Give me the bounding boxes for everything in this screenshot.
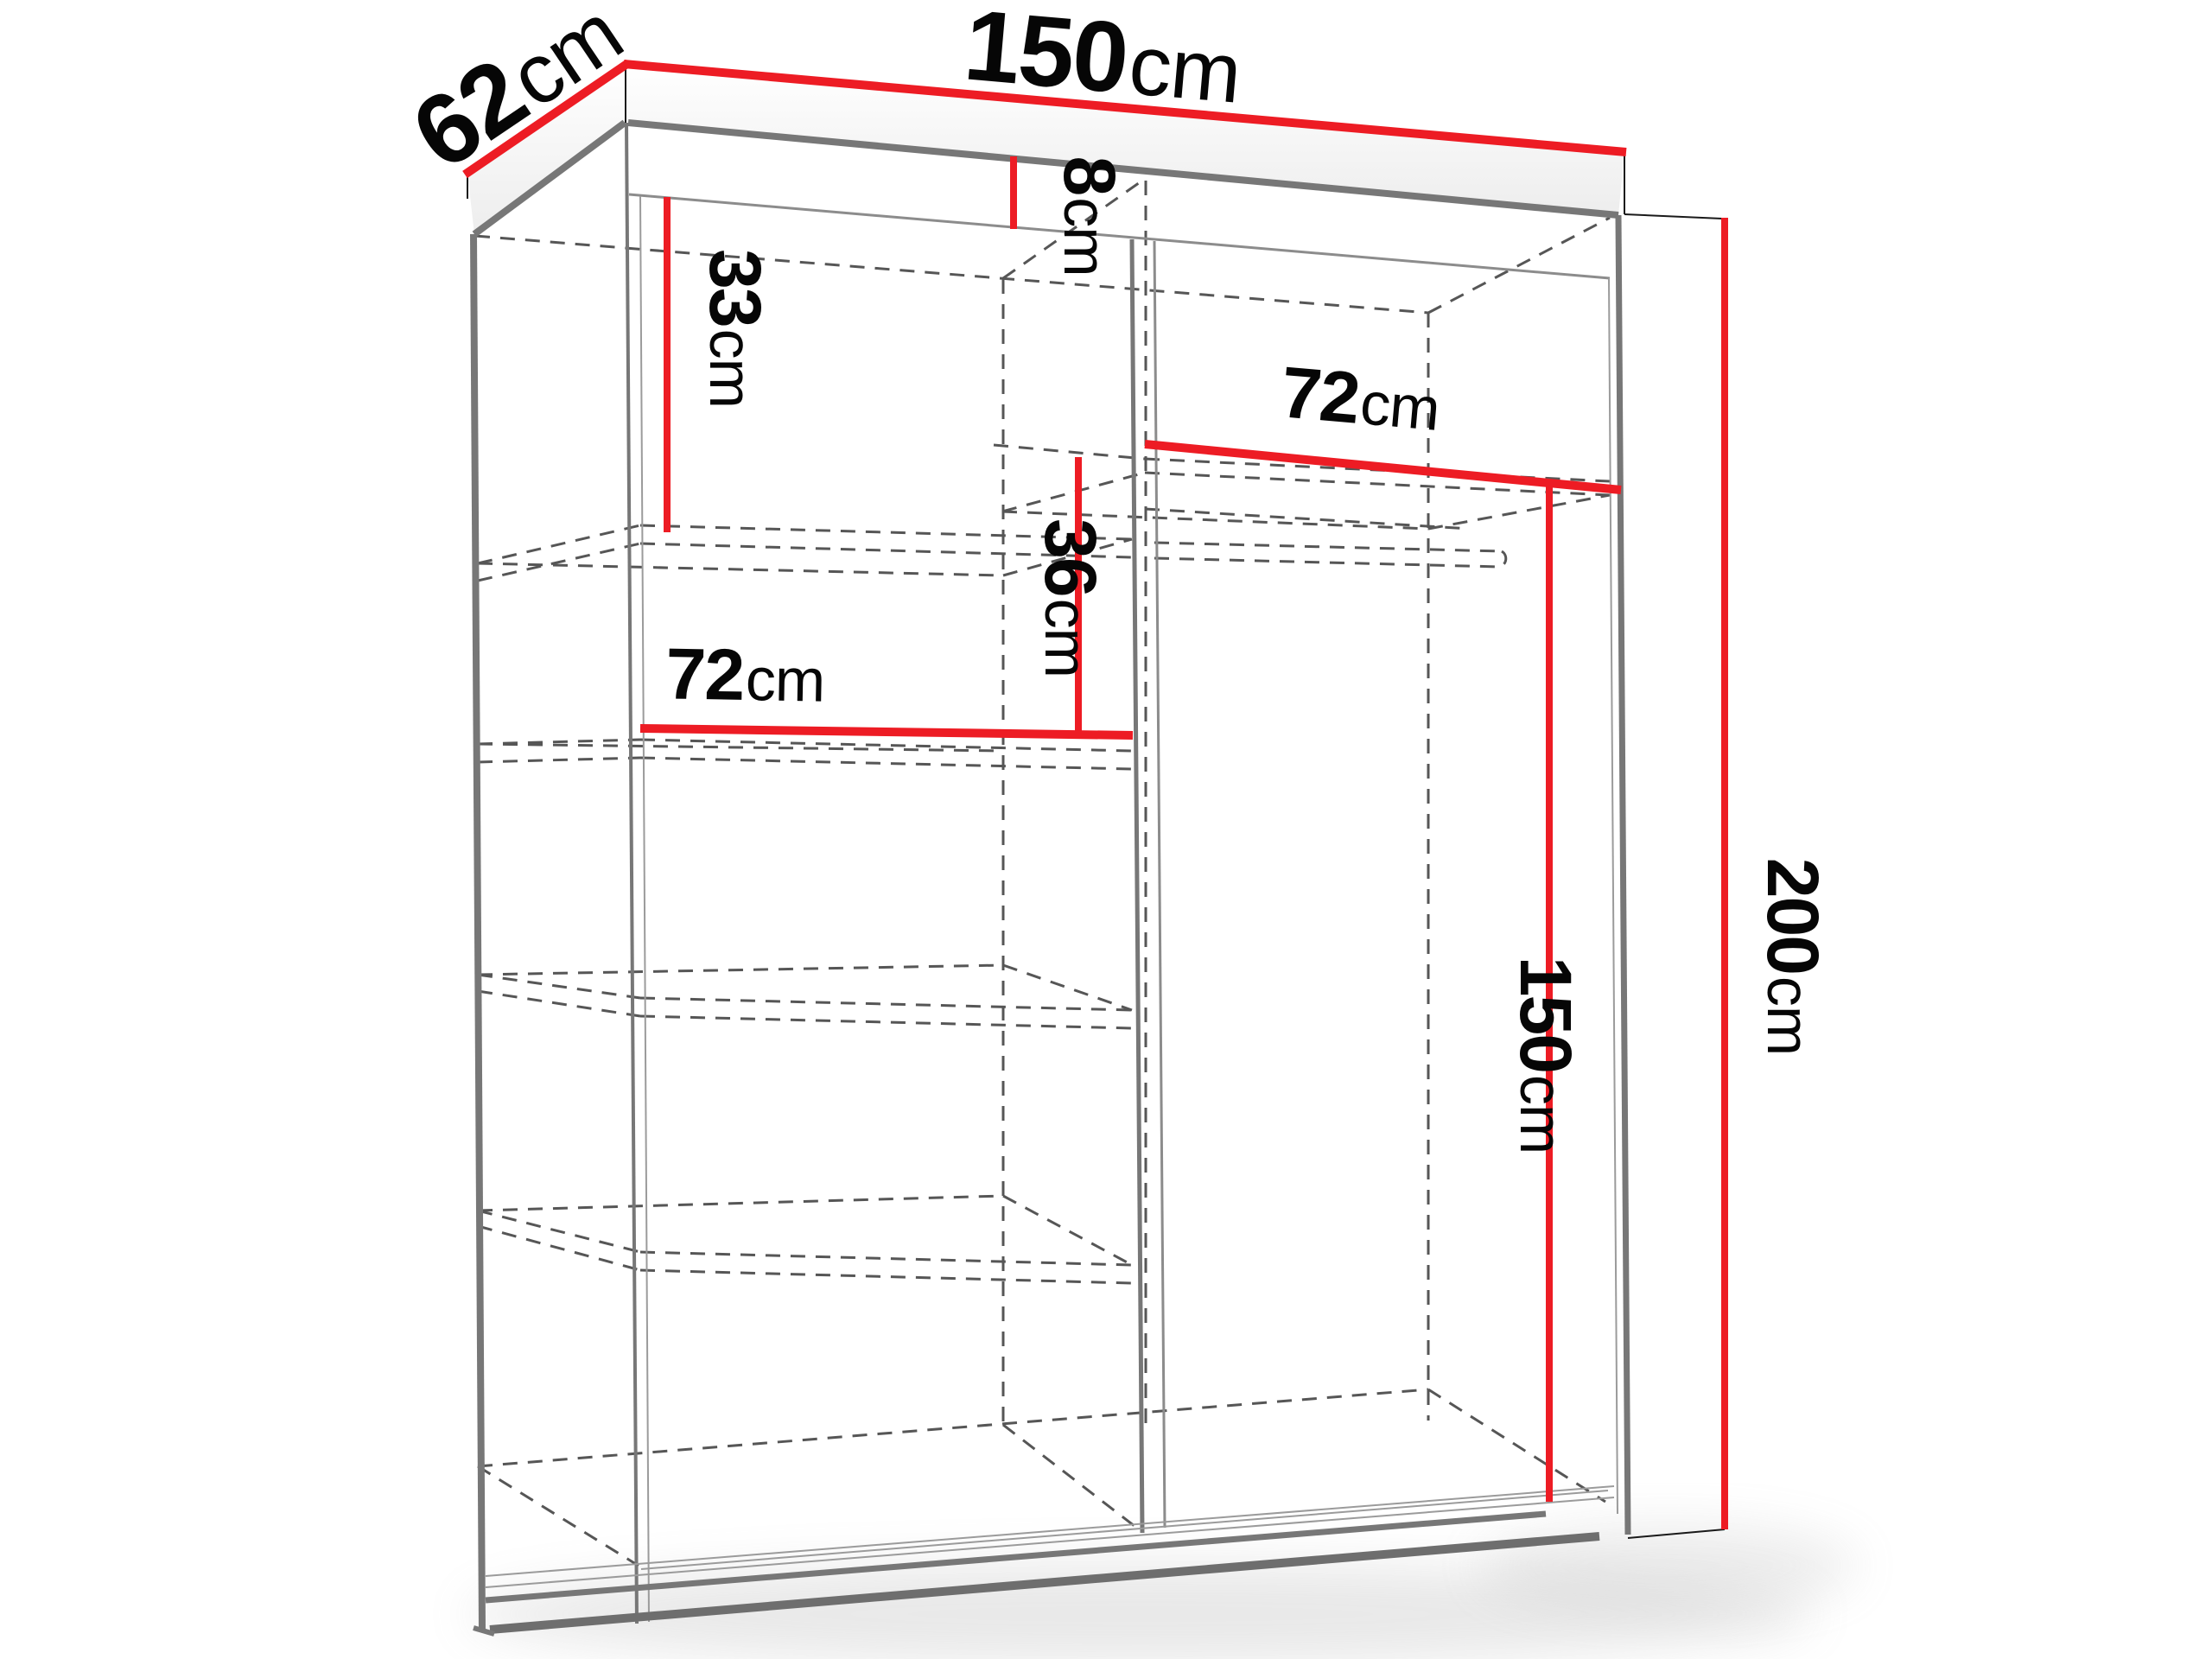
label-gap-36cm: 36cm [1030,518,1111,677]
dim-line-left-shelf-72 [640,728,1133,735]
left-inner-edge-2 [640,196,649,1622]
right-inner-edge [1609,278,1618,1514]
wardrobe-diagram: 150cm 62cm 8cm 33cm 72cm 36cm 72cm 150cm… [0,0,2212,1659]
label-right-shelf-72cm: 72cm [1278,351,1443,446]
floor-front-edge [641,1491,1608,1569]
hanging-rod [1154,543,1506,567]
left-inner-edge [626,123,637,1624]
rod-end-cap [1500,551,1506,567]
divider-bottom-diagonal [1003,1425,1139,1529]
divider-right-edge [1154,241,1165,1528]
label-upper-33cm: 33cm [695,249,776,408]
right-bottom-diagonal [1428,1389,1605,1502]
ceiling-back-edge [475,236,1428,313]
floor-back-edge [478,1389,1428,1466]
base-rail-1 [486,1486,1614,1576]
shelf-4 [478,1196,1132,1283]
shelf-2 [478,740,1132,769]
right-front-edge [1618,215,1628,1535]
dimension-lines [465,63,1725,1529]
label-interior-150cm: 150cm [1505,957,1586,1154]
wardrobe-structure [467,64,1725,1634]
label-top-8cm: 8cm [1049,156,1130,276]
divider-left-edge [1132,239,1142,1533]
left-outer-edge [474,234,482,1630]
label-height-200cm: 200cm [1752,858,1834,1055]
left-bottom-diagonal [478,1466,639,1566]
right-panel-top-edge [1624,214,1722,219]
shelf-3 [478,965,1132,1028]
label-left-shelf-72cm: 72cm [665,632,825,716]
